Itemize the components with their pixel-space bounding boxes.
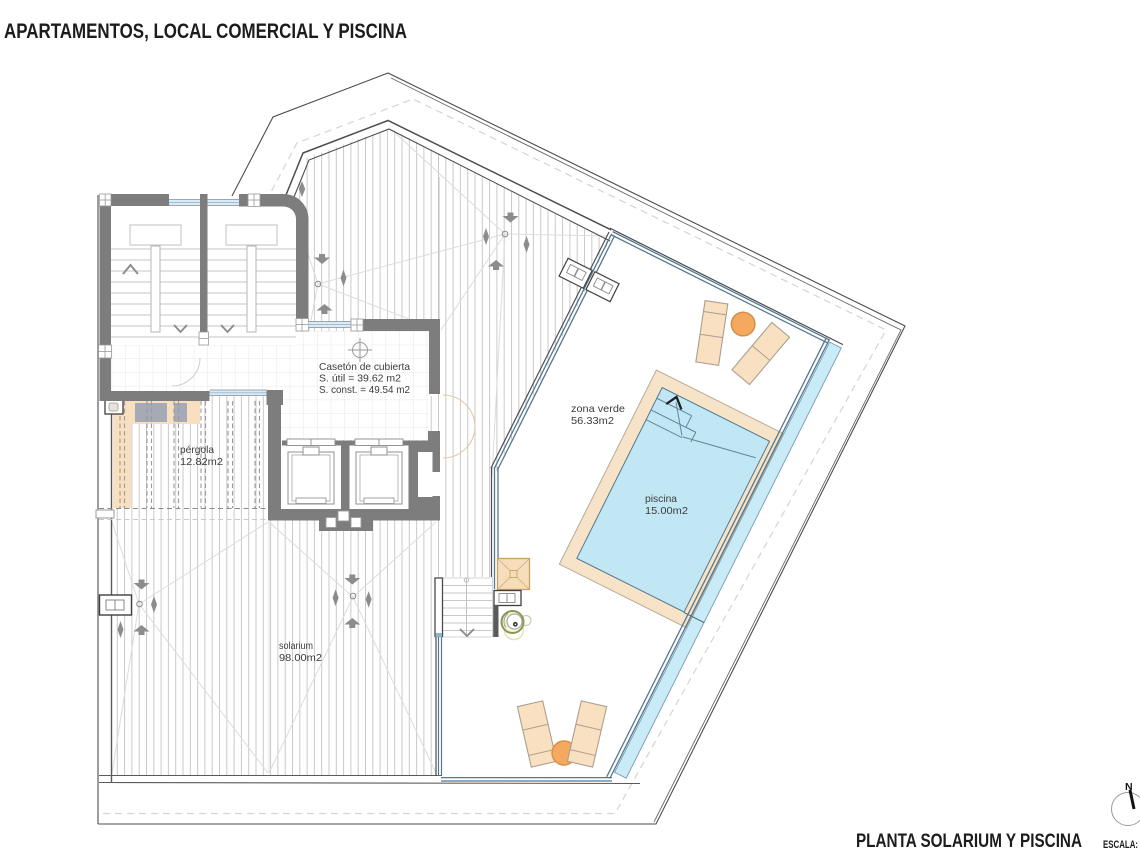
svg-text:piscina: piscina — [645, 493, 677, 505]
svg-text:N: N — [1125, 781, 1133, 793]
svg-text:15.00m2: 15.00m2 — [645, 505, 688, 517]
svg-text:98.00m2: 98.00m2 — [279, 652, 322, 664]
svg-text:S. const. = 49.54 m2: S. const. = 49.54 m2 — [319, 384, 410, 396]
svg-text:PLANTA SOLARIUM Y PISCINA: PLANTA SOLARIUM Y PISCINA — [856, 830, 1082, 852]
svg-text:S. útil = 39.62 m2: S. útil = 39.62 m2 — [319, 373, 401, 385]
svg-text:ESCALA:: ESCALA: — [1103, 839, 1138, 851]
svg-text:Casetón de cubierta: Casetón de cubierta — [319, 361, 410, 373]
svg-text:solarium: solarium — [279, 640, 313, 652]
svg-text:12.82m2: 12.82m2 — [180, 456, 223, 468]
svg-text:56.33m2: 56.33m2 — [571, 415, 614, 427]
svg-text:zona verde: zona verde — [571, 403, 625, 415]
svg-text:pérgola: pérgola — [180, 444, 214, 456]
svg-text:APARTAMENTOS, LOCAL COMERCIAL: APARTAMENTOS, LOCAL COMERCIAL Y PISCINA — [4, 19, 407, 43]
